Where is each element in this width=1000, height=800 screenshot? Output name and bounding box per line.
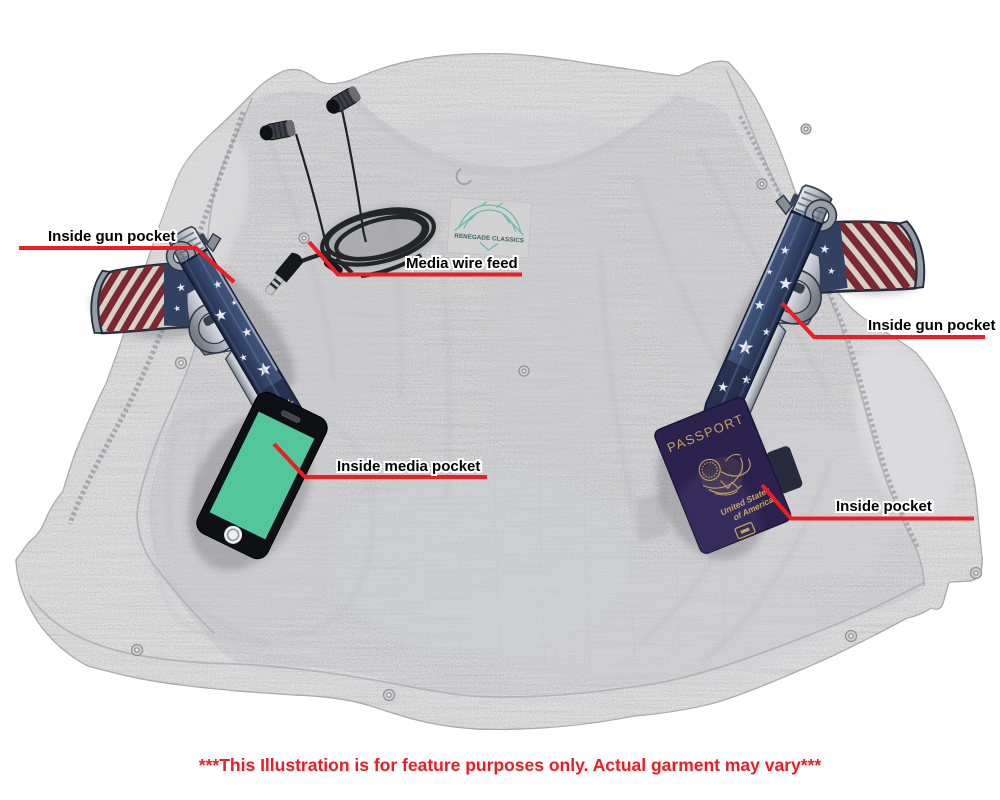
svg-text:Inside gun pocket: Inside gun pocket	[868, 317, 996, 334]
svg-text:Inside pocket: Inside pocket	[836, 498, 932, 515]
svg-text:Inside gun pocket: Inside gun pocket	[48, 228, 176, 245]
svg-text:Inside media pocket: Inside media pocket	[337, 458, 480, 475]
svg-text:Media wire feed: Media wire feed	[406, 255, 518, 272]
svg-text:***This Illustration is for fe: ***This Illustration is for feature purp…	[199, 755, 822, 775]
